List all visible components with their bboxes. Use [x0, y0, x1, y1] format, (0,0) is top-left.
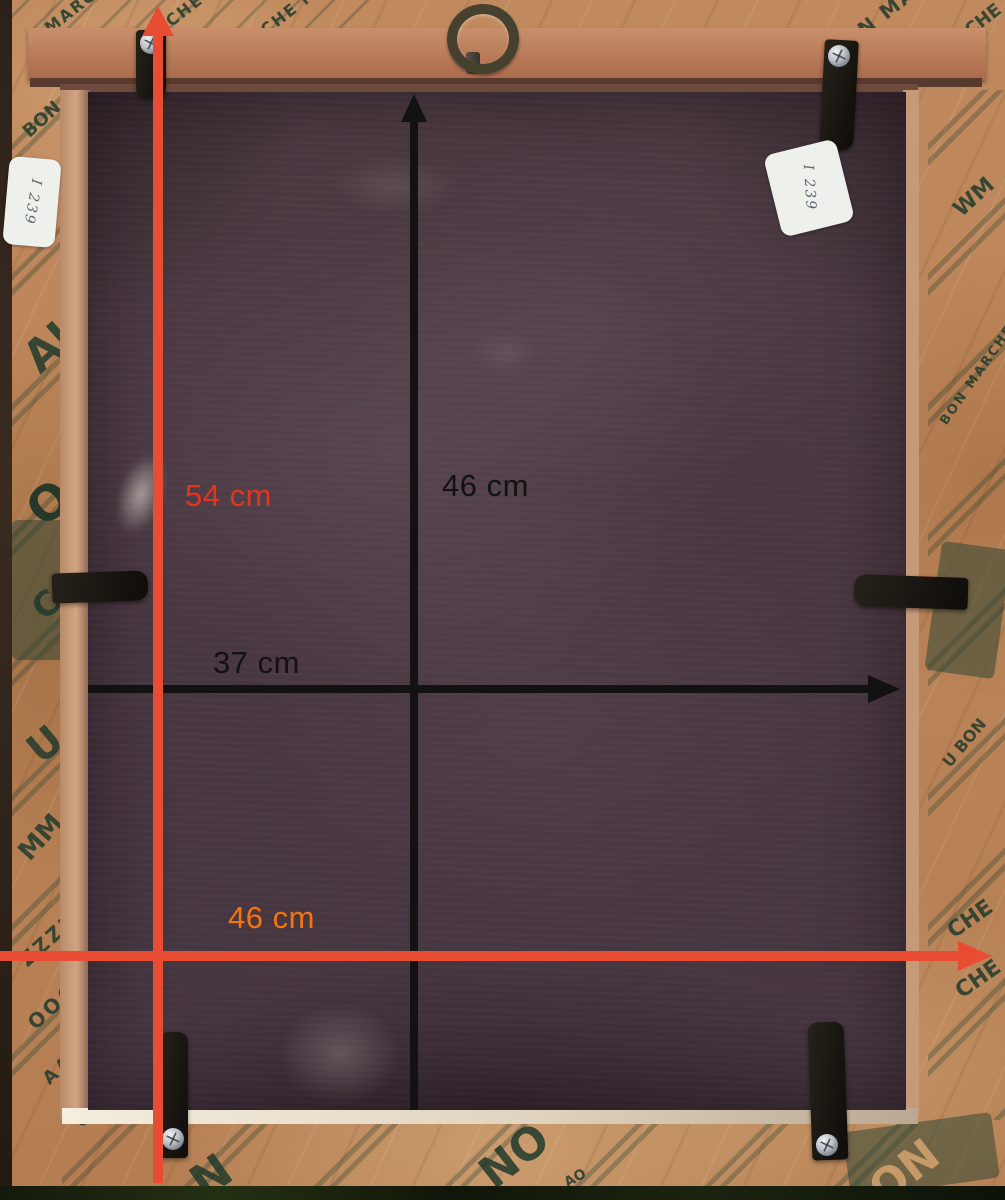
sticker-text: I 239: [799, 164, 818, 212]
scuff-mark: [278, 1002, 402, 1106]
frame-height-arrowhead-icon: [142, 6, 174, 36]
clip-screw: [162, 1128, 184, 1150]
grass-strip: [0, 1186, 1005, 1200]
board-height-arrow-shaft: [410, 120, 418, 1110]
measurement-label-board-width: 37 cm: [213, 645, 300, 681]
framed-picture-back-photo: MARCHE RCHE MA CHE MAR N MA CHE BON AU O…: [0, 0, 1005, 1200]
measurement-label-board-height: 46 cm: [442, 468, 529, 504]
frame-width-arrow-shaft: [0, 951, 960, 961]
clip-screw: [828, 45, 850, 67]
frame-height-arrow-shaft: [153, 32, 163, 1183]
frame-bottom-inner-strip: [62, 1108, 918, 1124]
inventory-sticker-left: I 239: [2, 156, 61, 248]
board-width-arrow-shaft: [88, 685, 870, 693]
frame-width-arrowhead-icon: [958, 941, 992, 971]
frame-clip-middle-left: [52, 570, 149, 603]
clip-screw: [816, 1134, 838, 1156]
scuff-mark: [330, 155, 460, 217]
frame-lip-left: [60, 90, 90, 1118]
board-height-arrowhead-icon: [401, 94, 427, 122]
frame-clip-middle-right: [853, 574, 968, 610]
measurement-label-frame-height: 54 cm: [185, 478, 272, 514]
board-width-arrowhead-icon: [868, 675, 900, 703]
sticker-text: I 239: [20, 178, 44, 227]
scuff-mark: [470, 330, 540, 376]
measurement-label-frame-width: 46 cm: [228, 900, 315, 936]
